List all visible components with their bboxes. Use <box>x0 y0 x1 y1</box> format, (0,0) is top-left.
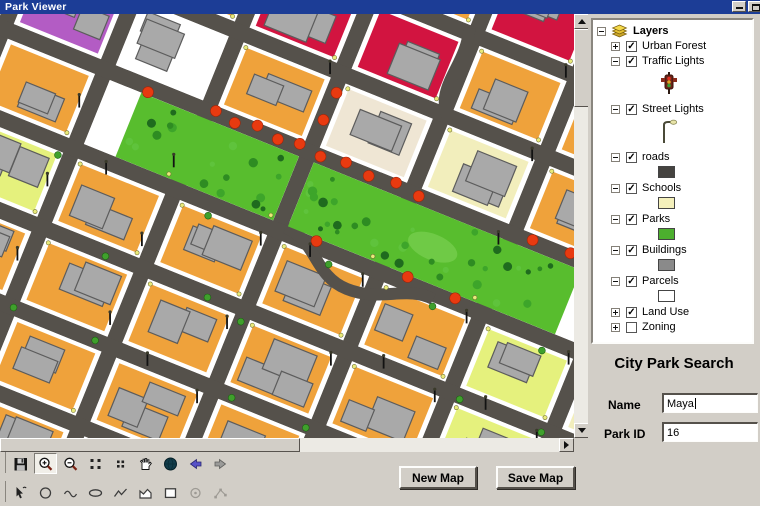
pan-hand-button[interactable] <box>134 453 157 474</box>
layer-label: Parks <box>642 213 670 225</box>
point-tool-button <box>184 482 207 503</box>
zoom-out-icon <box>62 456 79 472</box>
polyline-tool-icon <box>112 485 129 501</box>
zoom-selected-button[interactable] <box>109 453 132 474</box>
horizontal-scroll-thumb[interactable] <box>0 438 300 452</box>
layer-label: Zoning <box>642 321 676 333</box>
save-icon <box>12 456 29 472</box>
name-label: Name <box>608 398 641 412</box>
draw-toolbar-row2 <box>0 481 232 504</box>
layer-row-buildings[interactable]: ✓Buildings <box>611 243 750 257</box>
layer-row-land-use[interactable]: ✓Land Use <box>611 305 750 319</box>
circle-tool-button[interactable] <box>34 482 57 503</box>
maximize-icon <box>752 4 760 11</box>
polyline-tool-button[interactable] <box>109 482 132 503</box>
layers-icon <box>611 24 628 38</box>
layer-label: Schools <box>642 182 681 194</box>
layer-checkbox[interactable]: ✓ <box>626 183 637 194</box>
window-title: Park Viewer <box>5 1 67 13</box>
arrow-up-icon <box>578 19 586 24</box>
zoom-selected-icon <box>112 456 129 472</box>
select-pointer-button[interactable] <box>9 482 32 503</box>
back-arrow-icon <box>187 456 204 472</box>
full-extent-button[interactable] <box>84 453 107 474</box>
rectangle-tool-button[interactable] <box>159 482 182 503</box>
city-map[interactable] <box>0 14 574 438</box>
vertex-tool-icon <box>212 485 229 501</box>
layer-row-parcels[interactable]: ✓Parcels <box>611 274 750 288</box>
layer-label: Land Use <box>642 306 689 318</box>
layer-checkbox[interactable]: ✓ <box>626 307 637 318</box>
layer-label: roads <box>642 151 670 163</box>
park-id-input[interactable]: 16 <box>662 422 758 442</box>
layer-row-urban-forest[interactable]: ✓Urban Forest <box>611 39 750 53</box>
layer-label: Buildings <box>642 244 687 256</box>
polygon-tool-icon <box>137 485 154 501</box>
expand-plus-icon[interactable] <box>611 308 620 317</box>
vertex-tool-button <box>209 482 232 503</box>
map-canvas[interactable] <box>0 14 574 438</box>
layer-checkbox[interactable]: ✓ <box>626 152 637 163</box>
select-pointer-icon <box>12 485 29 501</box>
park-id-label: Park ID <box>604 427 645 441</box>
layer-row-traffic-lights[interactable]: ✓Traffic Lights <box>611 54 750 68</box>
collapse-minus-icon[interactable] <box>611 153 620 162</box>
new-map-button[interactable]: New Map <box>399 466 477 489</box>
curve-tool-button[interactable] <box>59 482 82 503</box>
map-toolbar-row1 <box>0 452 232 475</box>
layer-label: Parcels <box>642 275 679 287</box>
traffic-light-icon <box>658 70 680 96</box>
street-light-icon <box>658 118 680 144</box>
curve-tool-icon <box>62 485 79 501</box>
layers-root-row[interactable]: Layers <box>597 24 750 38</box>
legend-swatch-parks <box>658 228 675 240</box>
scroll-right-button[interactable] <box>559 438 574 452</box>
layer-row-street-lights[interactable]: ✓Street Lights <box>611 102 750 116</box>
layer-row-roads[interactable]: ✓roads <box>611 150 750 164</box>
zoom-out-button[interactable] <box>59 453 82 474</box>
minimize-button[interactable] <box>732 1 746 12</box>
legend-swatch-schools <box>658 197 675 209</box>
park-viewer-window: Park Viewer New Map Save Map Layers✓Urba… <box>0 0 760 506</box>
zoom-in-button[interactable] <box>34 453 57 474</box>
layer-checkbox[interactable]: ✓ <box>626 276 637 287</box>
polygon-tool-button[interactable] <box>134 482 157 503</box>
circle-tool-icon <box>37 485 54 501</box>
forward-arrow-button[interactable] <box>209 453 232 474</box>
layer-label: Urban Forest <box>642 40 706 52</box>
arrow-right-icon <box>564 441 569 449</box>
text-caret <box>695 398 696 409</box>
arrow-down-icon <box>578 428 586 433</box>
layer-checkbox[interactable]: ✓ <box>626 245 637 256</box>
layers-tree[interactable]: Layers✓Urban Forest✓Traffic Lights✓Stree… <box>591 18 754 344</box>
layer-checkbox[interactable]: ✓ <box>626 56 637 67</box>
collapse-minus-icon[interactable] <box>611 277 620 286</box>
layer-checkbox[interactable]: ✓ <box>626 104 637 115</box>
layer-label: Street Lights <box>642 103 704 115</box>
pan-hand-icon <box>137 456 154 472</box>
search-panel-title: City Park Search <box>588 355 760 372</box>
full-extent-icon <box>87 456 104 472</box>
legend-swatch-roads <box>658 166 675 178</box>
collapse-minus-icon[interactable] <box>611 57 620 66</box>
expand-plus-icon[interactable] <box>611 42 620 51</box>
name-input[interactable]: Maya <box>662 393 758 413</box>
collapse-minus-icon[interactable] <box>611 184 620 193</box>
layer-checkbox[interactable] <box>626 322 637 333</box>
zoom-in-icon <box>37 456 54 472</box>
layer-label: Traffic Lights <box>642 55 704 67</box>
minimize-icon <box>736 7 743 9</box>
collapse-minus-icon[interactable] <box>611 215 620 224</box>
expand-plus-icon[interactable] <box>611 323 620 332</box>
globe-button[interactable] <box>159 453 182 474</box>
point-tool-icon <box>187 485 204 501</box>
layer-row-schools[interactable]: ✓Schools <box>611 181 750 195</box>
layer-row-parks[interactable]: ✓Parks <box>611 212 750 226</box>
ellipse-tool-button[interactable] <box>84 482 107 503</box>
back-arrow-button[interactable] <box>184 453 207 474</box>
rectangle-tool-icon <box>162 485 179 501</box>
globe-icon <box>162 456 179 472</box>
side-panel: Layers✓Urban Forest✓Traffic Lights✓Stree… <box>588 14 760 506</box>
save-button[interactable] <box>9 453 32 474</box>
map-horizontal-scrollbar[interactable] <box>0 438 574 452</box>
ellipse-tool-icon <box>87 485 104 501</box>
layer-checkbox[interactable]: ✓ <box>626 214 637 225</box>
maximize-button[interactable] <box>748 1 760 12</box>
collapse-minus-icon[interactable] <box>611 246 620 255</box>
collapse-minus-icon[interactable] <box>597 27 606 36</box>
collapse-minus-icon[interactable] <box>611 105 620 114</box>
layer-label: Layers <box>633 25 668 37</box>
forward-arrow-icon <box>212 456 229 472</box>
save-map-button[interactable]: Save Map <box>496 466 575 489</box>
layer-checkbox[interactable]: ✓ <box>626 41 637 52</box>
title-bar: Park Viewer <box>0 0 760 14</box>
legend-swatch-parcels <box>658 290 675 302</box>
legend-swatch-buildings <box>658 259 675 271</box>
layer-row-zoning[interactable]: Zoning <box>611 320 750 334</box>
